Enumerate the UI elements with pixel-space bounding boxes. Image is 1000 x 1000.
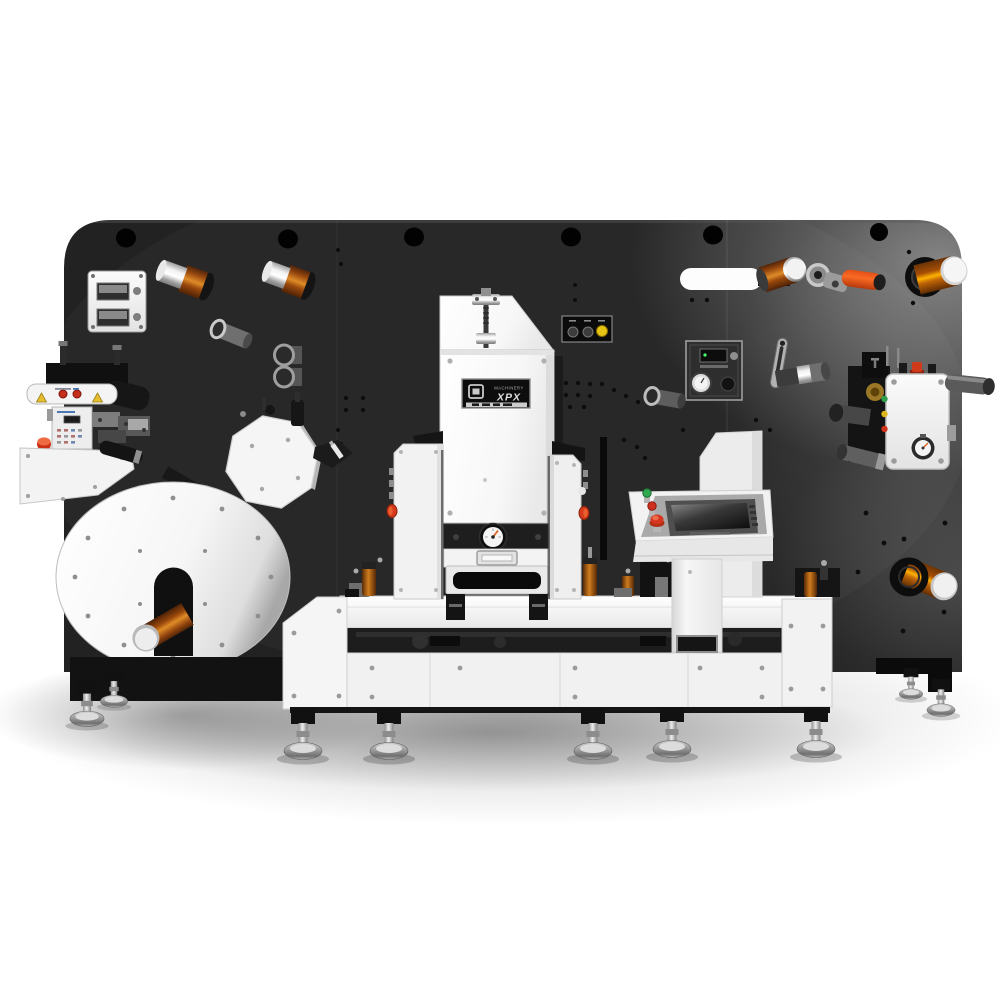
svg-text:MACHINERY: MACHINERY [494,386,524,391]
svg-text:XPX: XPX [496,392,521,404]
